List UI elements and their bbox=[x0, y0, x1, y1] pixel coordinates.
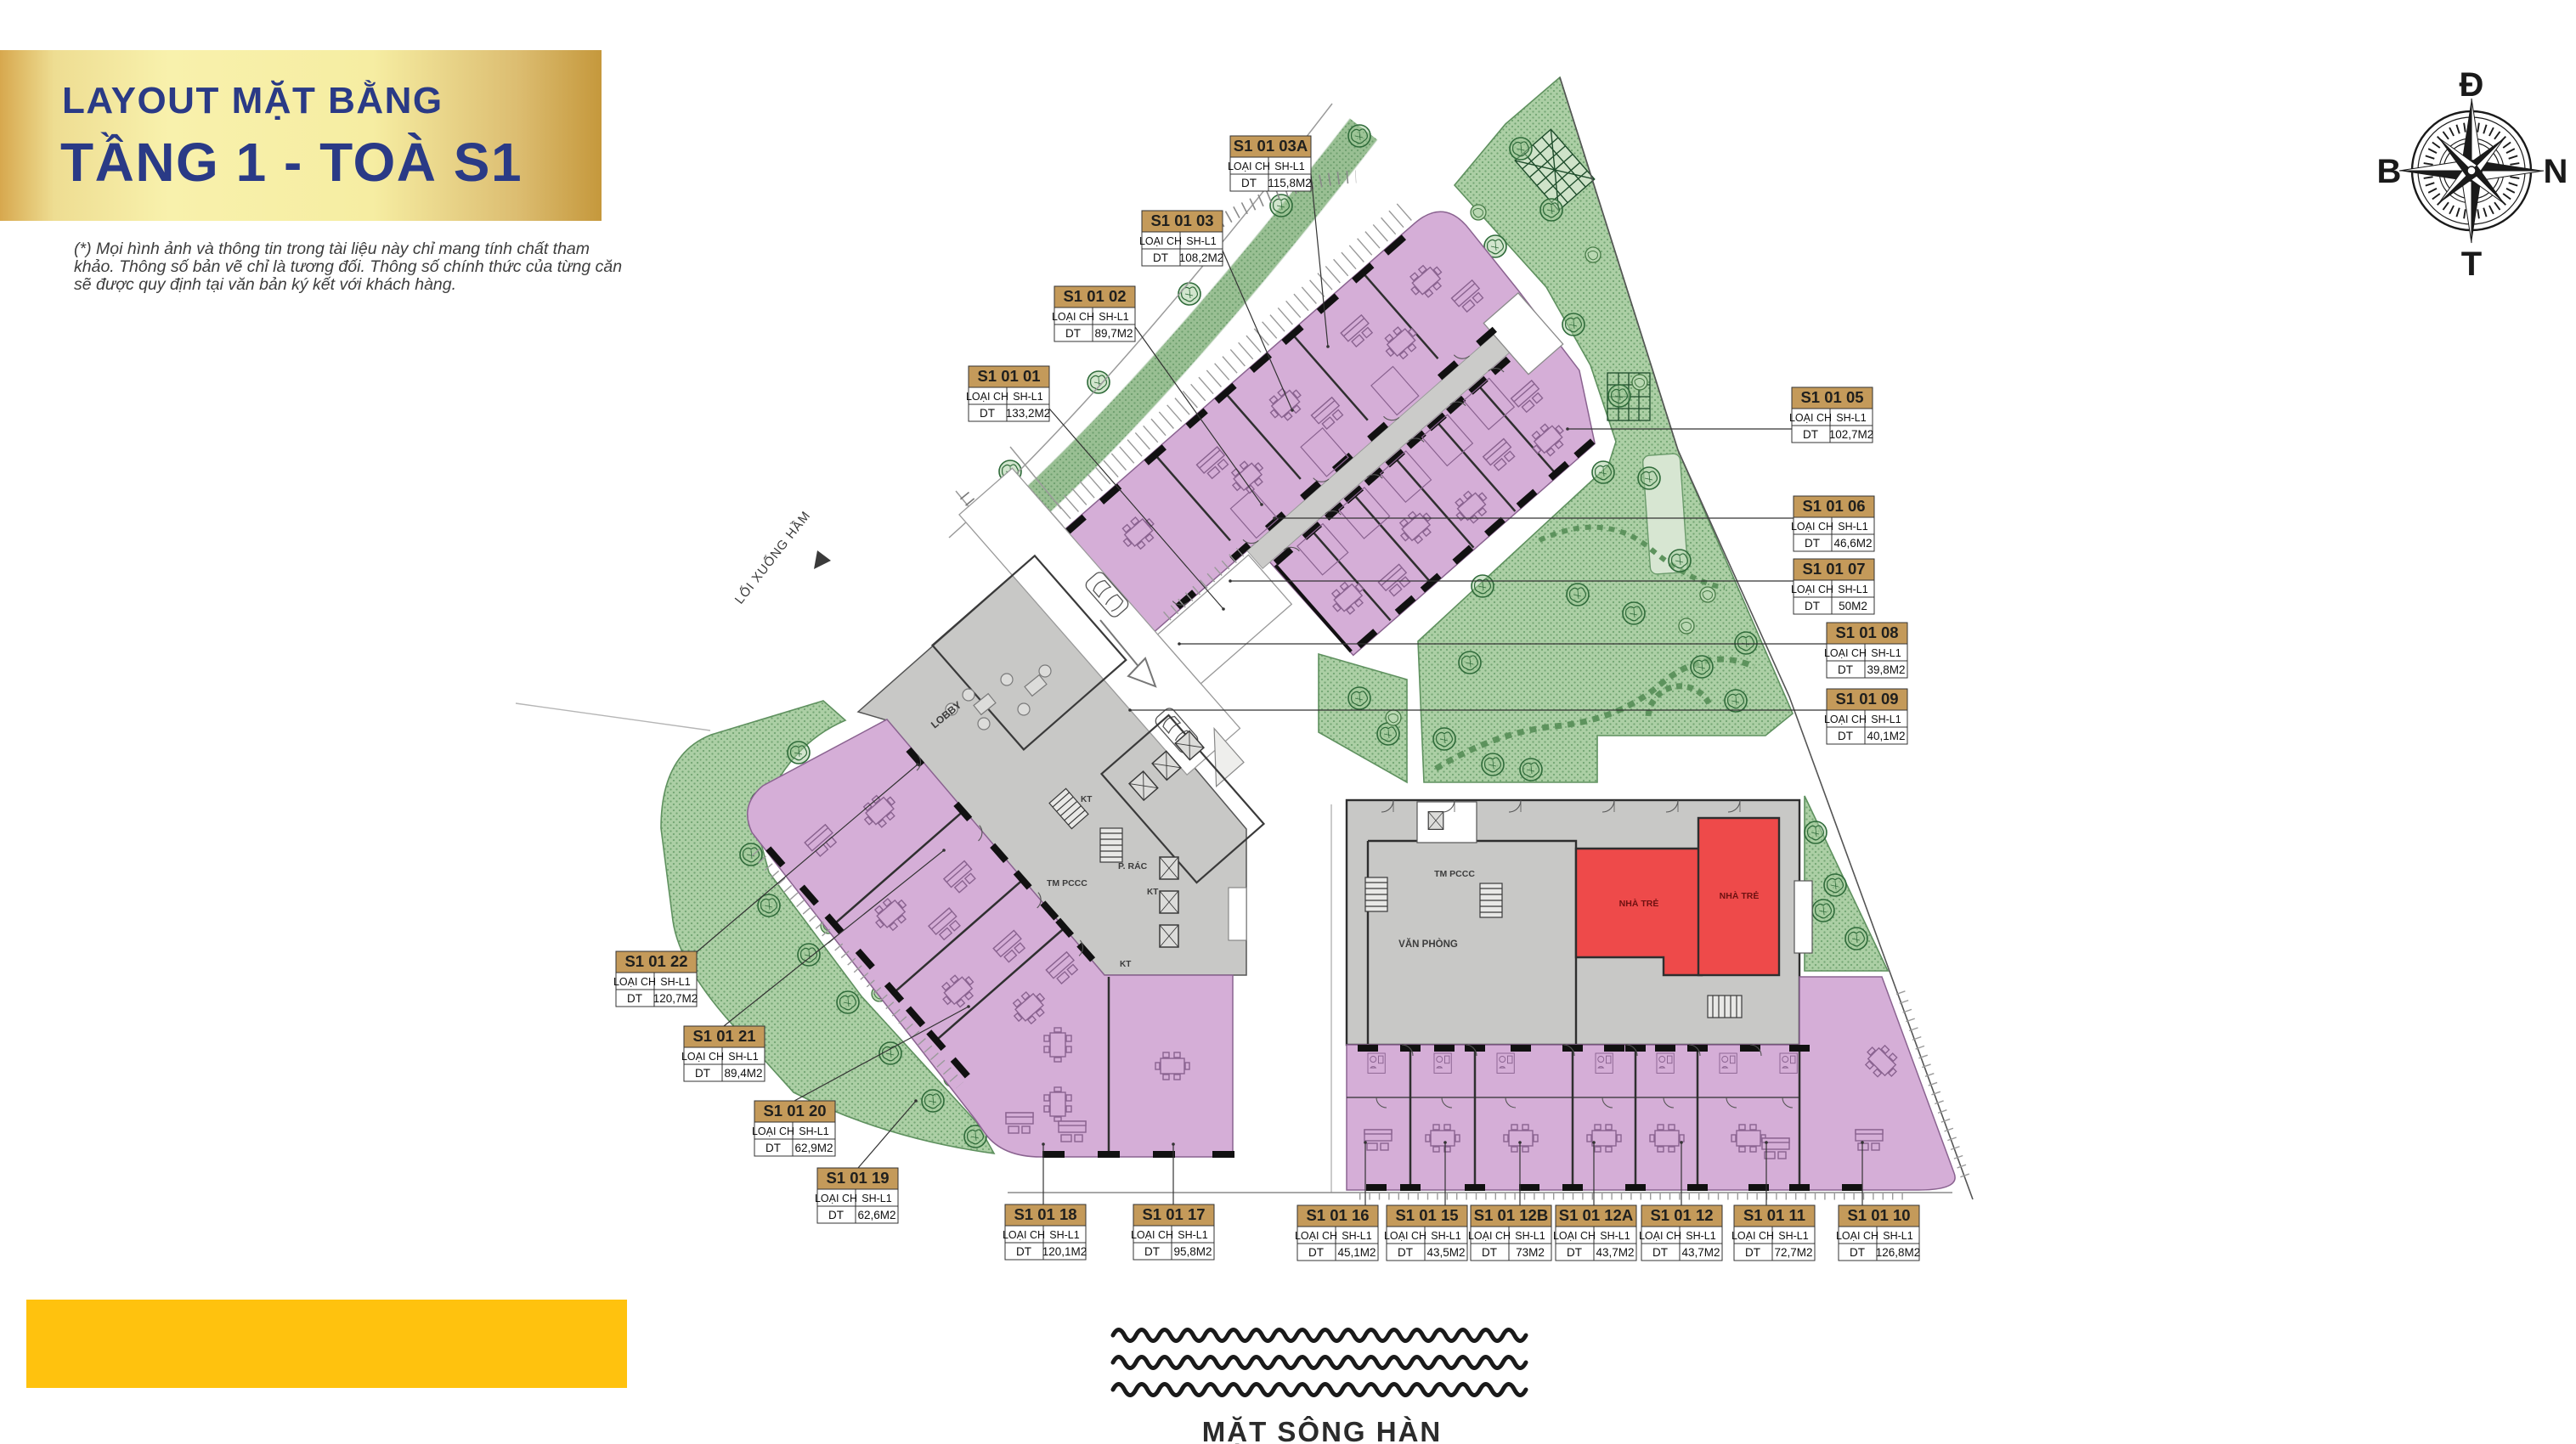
svg-text:MẶT SÔNG HÀN: MẶT SÔNG HÀN bbox=[1202, 1415, 1443, 1444]
svg-text:LOẠI CH: LOẠI CH bbox=[1553, 1230, 1596, 1242]
svg-text:N: N bbox=[2544, 153, 2568, 190]
svg-text:DT: DT bbox=[1838, 663, 1853, 676]
svg-text:SH-L1: SH-L1 bbox=[861, 1193, 891, 1204]
svg-text:KT: KT bbox=[1120, 960, 1131, 969]
svg-text:SH-L1: SH-L1 bbox=[728, 1051, 758, 1063]
svg-text:TẦNG 1 - TOÀ S1: TẦNG 1 - TOÀ S1 bbox=[60, 132, 523, 193]
svg-text:SH-L1: SH-L1 bbox=[799, 1125, 828, 1137]
svg-text:LOẠI CH: LOẠI CH bbox=[1791, 521, 1833, 533]
svg-text:DT: DT bbox=[1803, 428, 1818, 441]
svg-text:102,7M2: 102,7M2 bbox=[1829, 428, 1874, 441]
svg-text:DT: DT bbox=[1805, 600, 1820, 612]
svg-text:LOẠI CH: LOẠI CH bbox=[1824, 714, 1867, 725]
svg-text:39,8M2: 39,8M2 bbox=[1867, 663, 1905, 676]
svg-text:SH-L1: SH-L1 bbox=[1838, 521, 1867, 533]
svg-text:LOẠI CH: LOẠI CH bbox=[1789, 412, 1832, 424]
svg-text:SH-L1: SH-L1 bbox=[1600, 1230, 1630, 1242]
svg-text:DT: DT bbox=[1482, 1246, 1497, 1259]
svg-text:S1 01 19: S1 01 19 bbox=[826, 1169, 889, 1187]
svg-text:95,8M2: 95,8M2 bbox=[1173, 1245, 1212, 1258]
svg-text:SH-L1: SH-L1 bbox=[1099, 311, 1128, 323]
svg-text:108,2M2: 108,2M2 bbox=[1179, 251, 1224, 264]
svg-text:89,7M2: 89,7M2 bbox=[1094, 327, 1133, 340]
svg-text:43,7M2: 43,7M2 bbox=[1681, 1246, 1720, 1259]
svg-text:DT: DT bbox=[1850, 1246, 1865, 1259]
svg-text:LOẠI CH: LOẠI CH bbox=[1139, 235, 1182, 247]
svg-text:(*) Mọi hình ảnh và thông tin: (*) Mọi hình ảnh và thông tin trong tài … bbox=[74, 240, 590, 258]
svg-text:TM PCCC: TM PCCC bbox=[1434, 869, 1475, 879]
svg-text:SH-L1: SH-L1 bbox=[1515, 1230, 1545, 1242]
svg-text:DT: DT bbox=[765, 1142, 781, 1154]
svg-text:S1 01 02: S1 01 02 bbox=[1063, 287, 1126, 305]
svg-text:P. RÁC: P. RÁC bbox=[1118, 860, 1148, 871]
svg-text:DT: DT bbox=[1567, 1246, 1582, 1259]
svg-text:LOẠI CH: LOẠI CH bbox=[1295, 1230, 1337, 1242]
svg-text:DT: DT bbox=[1241, 177, 1257, 189]
svg-text:SH-L1: SH-L1 bbox=[1431, 1230, 1460, 1242]
svg-text:SH-L1: SH-L1 bbox=[1836, 412, 1866, 424]
svg-text:SH-L1: SH-L1 bbox=[1778, 1230, 1808, 1242]
svg-text:LOẠI CH: LOẠI CH bbox=[1003, 1229, 1045, 1241]
svg-text:S1 01 12A: S1 01 12A bbox=[1559, 1206, 1633, 1224]
svg-text:LOẠI CH: LOẠI CH bbox=[613, 976, 656, 988]
svg-text:120,1M2: 120,1M2 bbox=[1042, 1245, 1087, 1258]
svg-text:LAYOUT MẶT BẰNG: LAYOUT MẶT BẰNG bbox=[62, 79, 443, 121]
svg-text:DT: DT bbox=[1838, 730, 1853, 742]
svg-text:SH-L1: SH-L1 bbox=[1871, 714, 1901, 725]
svg-text:NHÀ TRẺ: NHÀ TRẺ bbox=[1619, 898, 1659, 909]
svg-text:SH-L1: SH-L1 bbox=[1274, 161, 1304, 172]
svg-text:DT: DT bbox=[1144, 1245, 1160, 1258]
svg-text:LOẠI CH: LOẠI CH bbox=[1228, 161, 1270, 172]
svg-text:DT: DT bbox=[1153, 251, 1168, 264]
svg-text:S1 01 03A: S1 01 03A bbox=[1234, 137, 1308, 155]
svg-text:120,7M2: 120,7M2 bbox=[653, 992, 698, 1005]
svg-text:LOẠI CH: LOẠI CH bbox=[1824, 647, 1867, 659]
svg-text:SH-L1: SH-L1 bbox=[1186, 235, 1216, 247]
svg-text:DT: DT bbox=[828, 1209, 844, 1221]
svg-text:S1 01 12: S1 01 12 bbox=[1650, 1206, 1713, 1224]
svg-text:126,8M2: 126,8M2 bbox=[1876, 1246, 1921, 1259]
svg-text:DT: DT bbox=[1398, 1246, 1413, 1259]
svg-text:B: B bbox=[2377, 153, 2402, 190]
svg-text:DT: DT bbox=[1308, 1246, 1324, 1259]
svg-text:LOẠI CH: LOẠI CH bbox=[1836, 1230, 1878, 1242]
svg-text:LOẠI CH: LOẠI CH bbox=[1052, 311, 1094, 323]
svg-text:LOẠI CH: LOẠI CH bbox=[815, 1193, 857, 1204]
svg-text:S1 01 05: S1 01 05 bbox=[1800, 388, 1863, 406]
svg-text:DT: DT bbox=[1652, 1246, 1668, 1259]
svg-text:SH-L1: SH-L1 bbox=[660, 976, 690, 988]
svg-text:133,2M2: 133,2M2 bbox=[1006, 407, 1051, 420]
svg-text:SH-L1: SH-L1 bbox=[1686, 1230, 1715, 1242]
svg-text:SH-L1: SH-L1 bbox=[1178, 1229, 1207, 1241]
svg-text:50M2: 50M2 bbox=[1839, 600, 1867, 612]
svg-text:LOẠI CH: LOẠI CH bbox=[1384, 1230, 1426, 1242]
svg-text:DT: DT bbox=[1805, 537, 1820, 550]
svg-text:sẽ được quy định tại văn bản k: sẽ được quy định tại văn bản ký kết với … bbox=[74, 275, 456, 294]
svg-text:NHÀ TRẺ: NHÀ TRẺ bbox=[1720, 890, 1760, 901]
svg-text:T: T bbox=[2461, 245, 2482, 283]
svg-text:S1 01 15: S1 01 15 bbox=[1395, 1206, 1458, 1224]
svg-text:SH-L1: SH-L1 bbox=[1342, 1230, 1371, 1242]
svg-text:S1 01 20: S1 01 20 bbox=[763, 1102, 826, 1120]
svg-text:S1 01 21: S1 01 21 bbox=[692, 1027, 755, 1045]
svg-text:40,1M2: 40,1M2 bbox=[1867, 730, 1905, 742]
svg-text:S1 01 17: S1 01 17 bbox=[1142, 1205, 1205, 1223]
svg-text:SH-L1: SH-L1 bbox=[1049, 1229, 1079, 1241]
svg-text:SH-L1: SH-L1 bbox=[1871, 647, 1901, 659]
svg-text:DT: DT bbox=[627, 992, 642, 1005]
svg-text:S1 01 07: S1 01 07 bbox=[1802, 560, 1865, 578]
svg-text:KT: KT bbox=[1081, 795, 1092, 804]
svg-text:S1 01 11: S1 01 11 bbox=[1743, 1206, 1805, 1224]
svg-text:SH-L1: SH-L1 bbox=[1013, 391, 1042, 403]
svg-text:Đ: Đ bbox=[2460, 66, 2484, 104]
svg-text:S1 01 03: S1 01 03 bbox=[1150, 212, 1213, 229]
svg-text:S1 01 12B: S1 01 12B bbox=[1474, 1206, 1548, 1224]
svg-text:VĂN PHÒNG: VĂN PHÒNG bbox=[1398, 939, 1458, 950]
svg-text:S1 01 01: S1 01 01 bbox=[977, 367, 1040, 385]
svg-text:S1 01 10: S1 01 10 bbox=[1847, 1206, 1910, 1224]
svg-text:DT: DT bbox=[1016, 1245, 1031, 1258]
svg-text:khảo. Thông số bản vẽ chỉ là t: khảo. Thông số bản vẽ chỉ là tương đối. … bbox=[74, 257, 622, 276]
svg-text:LOẠI CH: LOẠI CH bbox=[1131, 1229, 1173, 1241]
svg-text:LOẠI CH: LOẠI CH bbox=[1639, 1230, 1681, 1242]
svg-text:S1 01 16: S1 01 16 bbox=[1306, 1206, 1369, 1224]
svg-text:S1 01 09: S1 01 09 bbox=[1835, 690, 1898, 708]
svg-text:43,5M2: 43,5M2 bbox=[1426, 1246, 1465, 1259]
svg-text:S1 01 22: S1 01 22 bbox=[624, 952, 687, 970]
svg-text:S1 01 06: S1 01 06 bbox=[1802, 497, 1865, 515]
svg-text:115,8M2: 115,8M2 bbox=[1268, 177, 1312, 189]
svg-text:43,7M2: 43,7M2 bbox=[1596, 1246, 1634, 1259]
svg-text:KT: KT bbox=[1147, 888, 1158, 897]
svg-text:DT: DT bbox=[1745, 1246, 1760, 1259]
svg-text:DT: DT bbox=[695, 1067, 710, 1080]
svg-text:DT: DT bbox=[1065, 327, 1081, 340]
svg-text:S1 01 08: S1 01 08 bbox=[1835, 623, 1898, 641]
svg-text:LOẠI CH: LOẠI CH bbox=[752, 1125, 794, 1137]
svg-text:DT: DT bbox=[980, 407, 995, 420]
svg-text:LOẠI CH: LOẠI CH bbox=[681, 1051, 724, 1063]
svg-text:62,6M2: 62,6M2 bbox=[857, 1209, 895, 1221]
svg-text:LOẠI CH: LOẠI CH bbox=[1468, 1230, 1511, 1242]
svg-text:S1 01 18: S1 01 18 bbox=[1014, 1205, 1076, 1223]
svg-text:73M2: 73M2 bbox=[1516, 1246, 1545, 1259]
svg-text:LOẠI CH: LOẠI CH bbox=[1791, 584, 1833, 595]
svg-text:45,1M2: 45,1M2 bbox=[1337, 1246, 1376, 1259]
svg-text:SH-L1: SH-L1 bbox=[1838, 584, 1867, 595]
svg-text:62,9M2: 62,9M2 bbox=[794, 1142, 833, 1154]
svg-text:TM PCCC: TM PCCC bbox=[1047, 878, 1087, 888]
svg-text:72,7M2: 72,7M2 bbox=[1774, 1246, 1812, 1259]
svg-text:LOẠI CH: LOẠI CH bbox=[1731, 1230, 1774, 1242]
svg-text:LỐI XUỐNG HẦM: LỐI XUỐNG HẦM bbox=[732, 508, 814, 607]
svg-text:LOẠI CH: LOẠI CH bbox=[966, 391, 1008, 403]
svg-text:SH-L1: SH-L1 bbox=[1883, 1230, 1912, 1242]
svg-text:89,4M2: 89,4M2 bbox=[724, 1067, 762, 1080]
svg-text:46,6M2: 46,6M2 bbox=[1833, 537, 1872, 550]
